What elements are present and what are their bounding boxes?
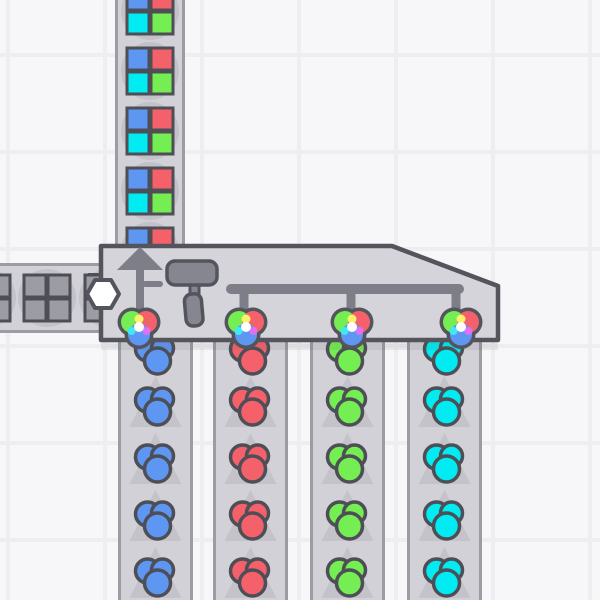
color-belt-cyan[interactable] [407,337,482,600]
window-quadrant [127,132,149,154]
wheel-center-white [241,322,251,332]
color-dot [145,399,171,425]
color-dot [434,570,460,596]
window-quadrant [151,72,173,94]
belt-rail [118,338,121,600]
belt-rail [310,338,313,600]
window-quadrant [151,168,173,190]
window-quadrant [151,108,173,130]
game-viewport[interactable] [0,0,600,600]
belt-rail [190,338,193,600]
window-quadrant [151,48,173,70]
window-shape-item [127,48,173,94]
color-dot [434,456,460,482]
color-dot [337,399,363,425]
window-quadrant [151,0,173,10]
color-belt-green[interactable] [310,337,385,600]
color-dot [240,570,266,596]
color-dot [434,399,460,425]
grid-line-horizontal [0,538,600,542]
wheel-center-white [347,322,357,332]
color-dot [240,399,266,425]
color-dot [434,513,460,539]
window-quadrant [24,275,46,297]
color-dot [145,570,171,596]
window-quadrant [127,12,149,34]
window-shape-item [127,168,173,214]
color-dot [145,348,171,374]
color-dot [145,513,171,539]
belt-rail [479,338,482,600]
window-shape-item [24,275,70,321]
window-shape-item [127,108,173,154]
window-quadrant [151,132,173,154]
window-quadrant [127,192,149,214]
color-belt-red[interactable] [213,337,288,600]
grid-line-horizontal [0,441,600,445]
window-quadrant [151,12,173,34]
color-dot [337,456,363,482]
belt-rail [285,338,288,600]
belt-rail [182,0,185,248]
belt-rail [0,330,101,333]
grid-line-horizontal [0,150,600,154]
window-quadrant [127,168,149,190]
window-quadrant [127,108,149,130]
window-quadrant [127,0,149,10]
belt-rail [407,338,410,600]
color-dot [240,348,266,374]
wheel-center-white [456,322,466,332]
window-shape-item [0,275,10,321]
roller-head [167,261,217,285]
window-quadrant [48,299,70,321]
color-dot [240,456,266,482]
window-quadrant [0,275,10,297]
color-dot [145,456,171,482]
window-quadrant [48,275,70,297]
belt-rail [382,338,385,600]
output-belt[interactable] [115,0,185,280]
window-quadrant [0,299,10,321]
color-belt-blue[interactable] [118,337,193,600]
color-dot [337,348,363,374]
window-quadrant [151,192,173,214]
color-dot [337,570,363,596]
wheel-center-white [134,322,144,332]
grid-line-horizontal [0,53,600,57]
grid-line-vertical [588,0,592,600]
window-quadrant [24,299,46,321]
building-shadow [101,342,498,350]
belt-rail [213,338,216,600]
belt-rail [0,263,101,266]
pipe-bar [226,284,464,294]
shape-input-hexagon-icon [87,280,119,308]
window-shape-item [127,0,173,34]
color-dot [337,513,363,539]
color-dot [240,513,266,539]
window-quadrant [127,72,149,94]
belt-rail [115,0,118,248]
color-dot [434,348,460,374]
window-quadrant [127,48,149,70]
roller-grip [184,293,204,326]
arrow-tick [142,281,163,287]
